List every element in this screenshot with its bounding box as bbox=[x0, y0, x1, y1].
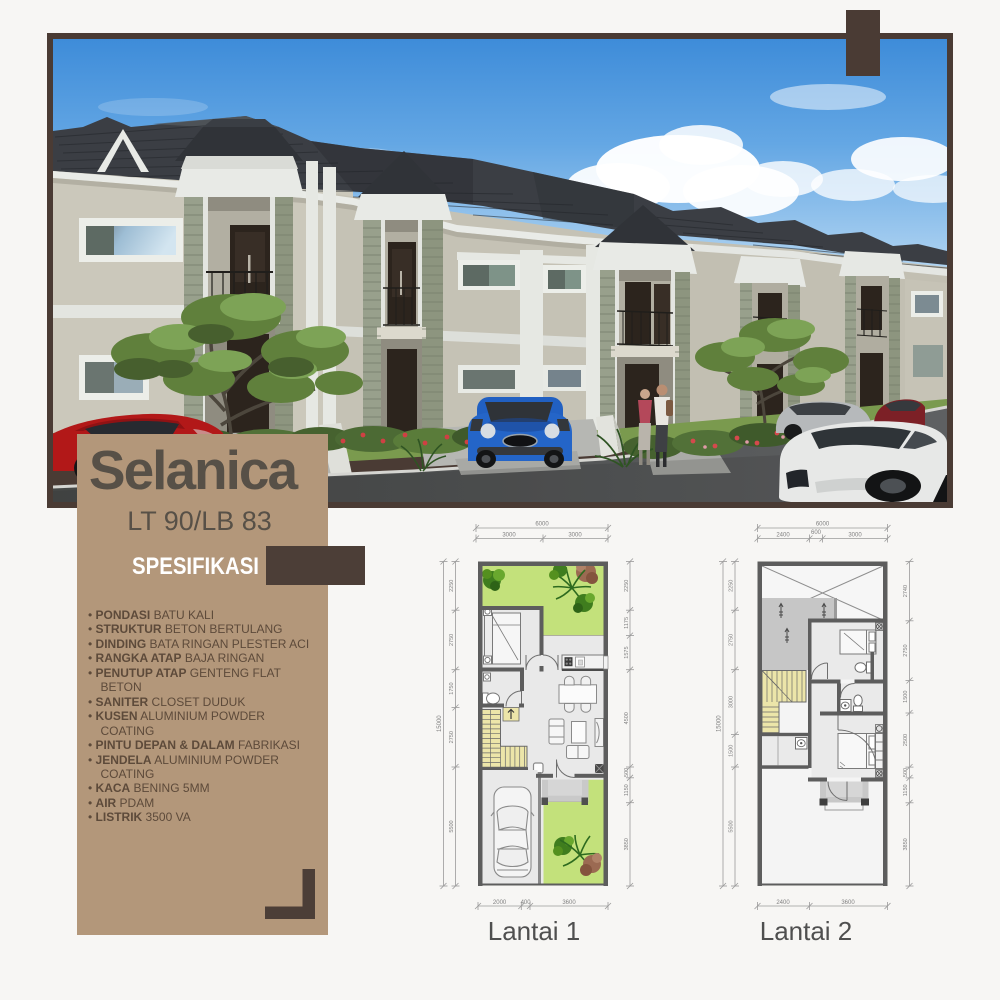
svg-text:2750: 2750 bbox=[729, 634, 735, 646]
svg-text:1175: 1175 bbox=[624, 617, 630, 629]
svg-text:500: 500 bbox=[903, 768, 909, 777]
svg-text:1575: 1575 bbox=[624, 646, 630, 658]
svg-text:1150: 1150 bbox=[624, 784, 630, 796]
svg-text:2250: 2250 bbox=[449, 580, 455, 592]
svg-text:2740: 2740 bbox=[903, 585, 909, 597]
svg-text:1750: 1750 bbox=[449, 682, 455, 694]
svg-text:3850: 3850 bbox=[903, 838, 909, 850]
svg-text:2250: 2250 bbox=[729, 580, 735, 592]
svg-text:2400: 2400 bbox=[776, 533, 790, 539]
svg-text:3000: 3000 bbox=[502, 533, 516, 539]
svg-text:3000: 3000 bbox=[729, 696, 735, 708]
svg-text:500: 500 bbox=[624, 768, 630, 777]
svg-text:15000: 15000 bbox=[717, 715, 723, 732]
svg-text:3850: 3850 bbox=[624, 838, 630, 850]
svg-text:1150: 1150 bbox=[903, 784, 909, 796]
svg-text:4500: 4500 bbox=[624, 712, 630, 724]
svg-text:2750: 2750 bbox=[903, 644, 909, 656]
svg-text:400: 400 bbox=[521, 900, 532, 906]
svg-text:3000: 3000 bbox=[568, 533, 582, 539]
svg-text:3600: 3600 bbox=[841, 900, 855, 906]
svg-text:2500: 2500 bbox=[903, 734, 909, 746]
svg-text:3600: 3600 bbox=[562, 900, 576, 906]
svg-text:2000: 2000 bbox=[493, 900, 507, 906]
svg-text:2750: 2750 bbox=[449, 634, 455, 646]
svg-text:5500: 5500 bbox=[729, 820, 735, 832]
svg-text:2750: 2750 bbox=[449, 731, 455, 743]
svg-text:2400: 2400 bbox=[776, 900, 790, 906]
svg-text:2250: 2250 bbox=[624, 580, 630, 592]
svg-text:1500: 1500 bbox=[903, 691, 909, 703]
svg-text:5500: 5500 bbox=[449, 820, 455, 832]
svg-text:3000: 3000 bbox=[848, 533, 862, 539]
svg-text:15000: 15000 bbox=[437, 715, 443, 732]
svg-text:600: 600 bbox=[811, 530, 822, 536]
svg-text:6000: 6000 bbox=[816, 522, 830, 528]
svg-text:1500: 1500 bbox=[729, 745, 735, 757]
svg-text:6000: 6000 bbox=[535, 522, 549, 528]
